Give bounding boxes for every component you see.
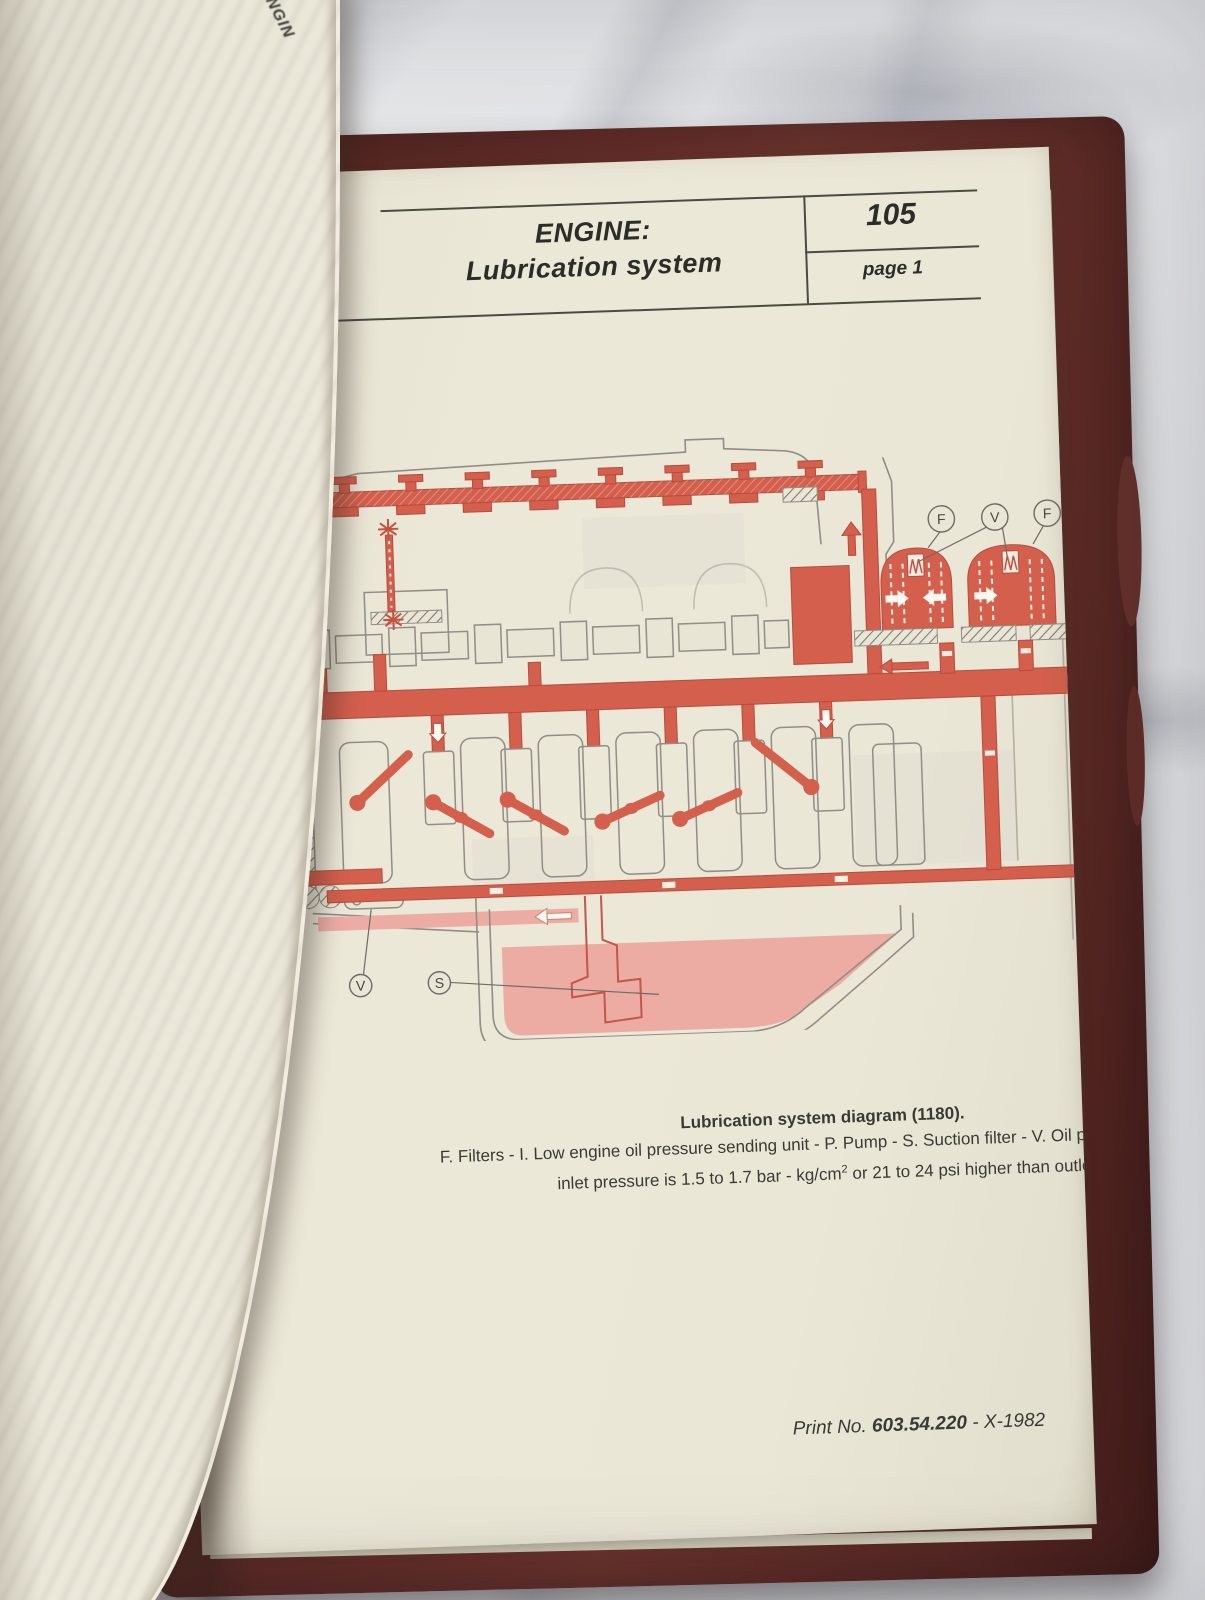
oil-return-line [327, 864, 1089, 903]
print-number-value: 603.54.220 [872, 1412, 968, 1436]
rocker-shaft [305, 459, 867, 519]
facing-page-edge-text: ENGIN [256, 0, 297, 42]
label-relief-valve-filters: V [990, 509, 1001, 525]
lubrication-diagram: F V F P V S [216, 414, 1095, 1050]
oil-spray-star [378, 519, 399, 540]
header-rule-mid [805, 245, 979, 253]
label-relief-valve-pump: V [356, 977, 367, 993]
page-number: 105 [803, 195, 978, 235]
tappet-pushrod [362, 517, 451, 693]
label-suction-filter: S [434, 975, 444, 991]
label-filter-right: F [1043, 505, 1053, 521]
label-filter-left: F [937, 511, 947, 527]
oil-sump [476, 883, 917, 1050]
facing-page-curled: ENGIN [0, 0, 340, 1600]
header-rule-bottom [307, 297, 981, 323]
print-number: Print No. 603.54.220 - X-1982 [792, 1410, 1045, 1441]
page-label: page 1 [806, 255, 981, 283]
photo-scene: ENGINE: Lubrication system 105 page 1 [0, 0, 1205, 1600]
lubrication-diagram-svg: F V F P V S [216, 414, 1095, 1050]
flow-up-arrow [841, 522, 861, 556]
figure-caption: Lubrication system diagram (1180). F. Fi… [342, 1089, 1096, 1205]
sump-oil [502, 934, 901, 1037]
page-title: ENGINE: Lubrication system [381, 207, 806, 292]
suction-line [318, 907, 579, 932]
